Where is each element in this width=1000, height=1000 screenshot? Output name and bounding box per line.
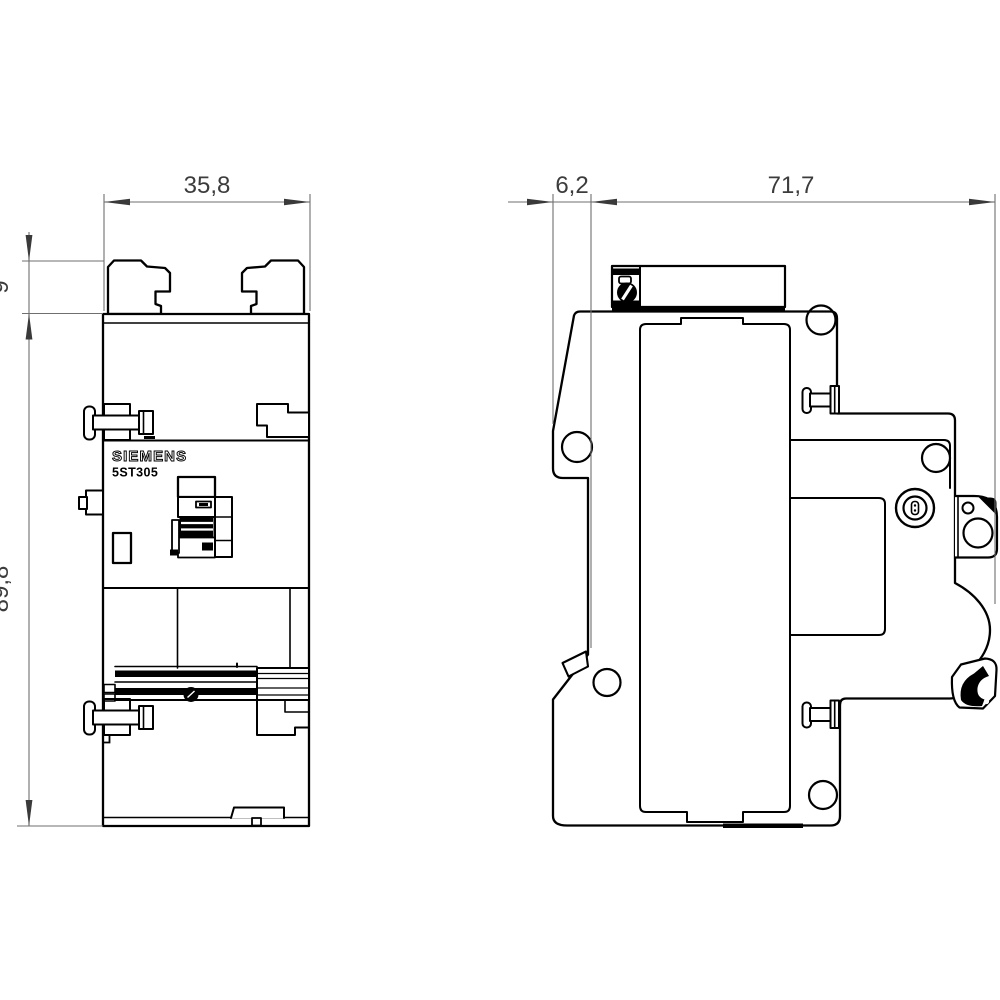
screw-clamp xyxy=(139,706,153,729)
dim-label-body-depth: 71,7 xyxy=(768,172,815,199)
switch-left-rail xyxy=(172,520,179,553)
front-view: SIEMENS 5ST305 xyxy=(79,261,309,827)
arrowhead xyxy=(591,199,617,206)
brand-label: SIEMENS xyxy=(112,448,187,465)
switch-right-column xyxy=(215,497,232,557)
front-bottom-tab-window xyxy=(252,818,261,826)
dim-label-front-depth: 6,2 xyxy=(555,172,588,199)
side-body-outline xyxy=(553,312,990,826)
arrowhead xyxy=(104,199,130,206)
dim-label-body-height: 89,8 xyxy=(0,566,14,613)
side-terminal-block xyxy=(612,266,785,313)
screw-shaft xyxy=(93,416,141,430)
screw-clamp xyxy=(139,411,153,434)
side-bump xyxy=(86,491,103,515)
arrowhead xyxy=(26,235,33,261)
arrowhead xyxy=(527,199,553,206)
side-bump-tip xyxy=(79,497,87,509)
arrowhead xyxy=(284,199,310,206)
dimension-heights: 9 89,8 xyxy=(0,232,104,826)
terminal-block-base-band xyxy=(612,307,785,313)
drawing-canvas: SIEMENS 5ST305 xyxy=(0,0,1000,1000)
front-top-tab-left xyxy=(108,261,170,315)
switch-slot-mark xyxy=(199,503,208,506)
din-rail-clip-icon xyxy=(952,659,997,709)
model-label: 5ST305 xyxy=(112,466,158,480)
front-divider-dash xyxy=(144,436,155,439)
arrowhead xyxy=(26,800,33,826)
latch-upper xyxy=(955,496,997,558)
dim-label-tab-height: 9 xyxy=(0,280,14,293)
switch-grip xyxy=(180,517,214,538)
side-view xyxy=(553,266,997,828)
bottom-rail-band xyxy=(723,824,803,829)
switch-corner-pad xyxy=(170,550,178,556)
busbar-band-top xyxy=(115,671,257,678)
arrowhead xyxy=(26,314,33,340)
indicator-window xyxy=(113,533,131,563)
switch-knob xyxy=(178,477,215,497)
switch-black-pad xyxy=(202,543,213,551)
front-body-outline xyxy=(103,314,309,826)
front-bottom-tab xyxy=(231,808,284,819)
front-top-tab-right xyxy=(242,261,304,315)
technical-drawing: SIEMENS 5ST305 xyxy=(0,0,1000,1000)
dim-label-front-width: 35,8 xyxy=(184,172,231,199)
arrowhead xyxy=(969,199,995,206)
screw-shaft xyxy=(93,711,141,725)
